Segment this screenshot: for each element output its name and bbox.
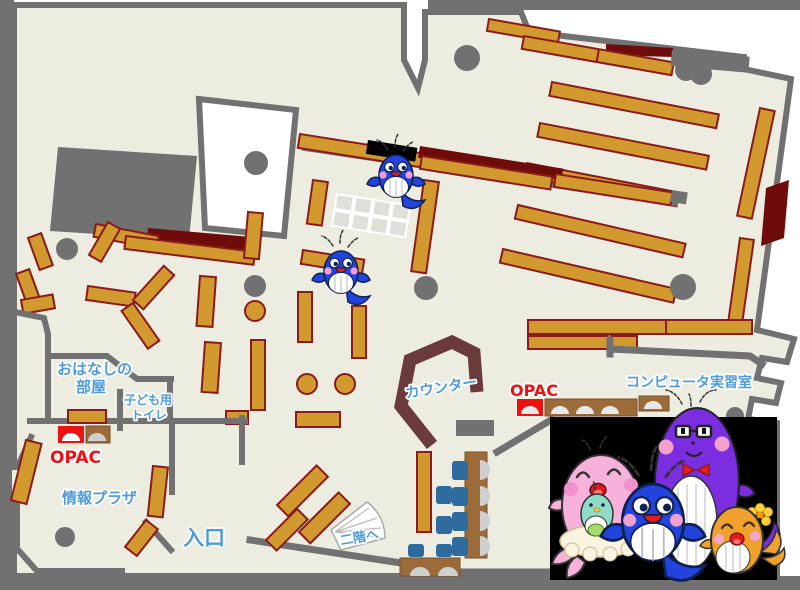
label-storytelling-room-2: 部屋: [76, 378, 106, 396]
label-info-plaza: 情報プラザ: [62, 489, 137, 507]
label-opac-left: OPAC: [50, 448, 101, 468]
library-floor-map: おはなしの 部屋 子ども用 トイレ OPAC 情報プラザ 入口 カウンター 二階…: [0, 0, 800, 590]
label-storytelling-room-1: おはなしの: [57, 360, 132, 378]
label-entrance: 入口: [183, 526, 225, 550]
mascot-family-photo: [549, 390, 785, 580]
label-computer-room: コンピュータ実習室: [626, 374, 752, 391]
label-kids-toilet-2: トイレ: [131, 408, 167, 422]
label-kids-toilet-1: 子ども用: [124, 393, 172, 407]
pillar: [244, 151, 268, 175]
label-opac-right: OPAC: [510, 381, 558, 400]
